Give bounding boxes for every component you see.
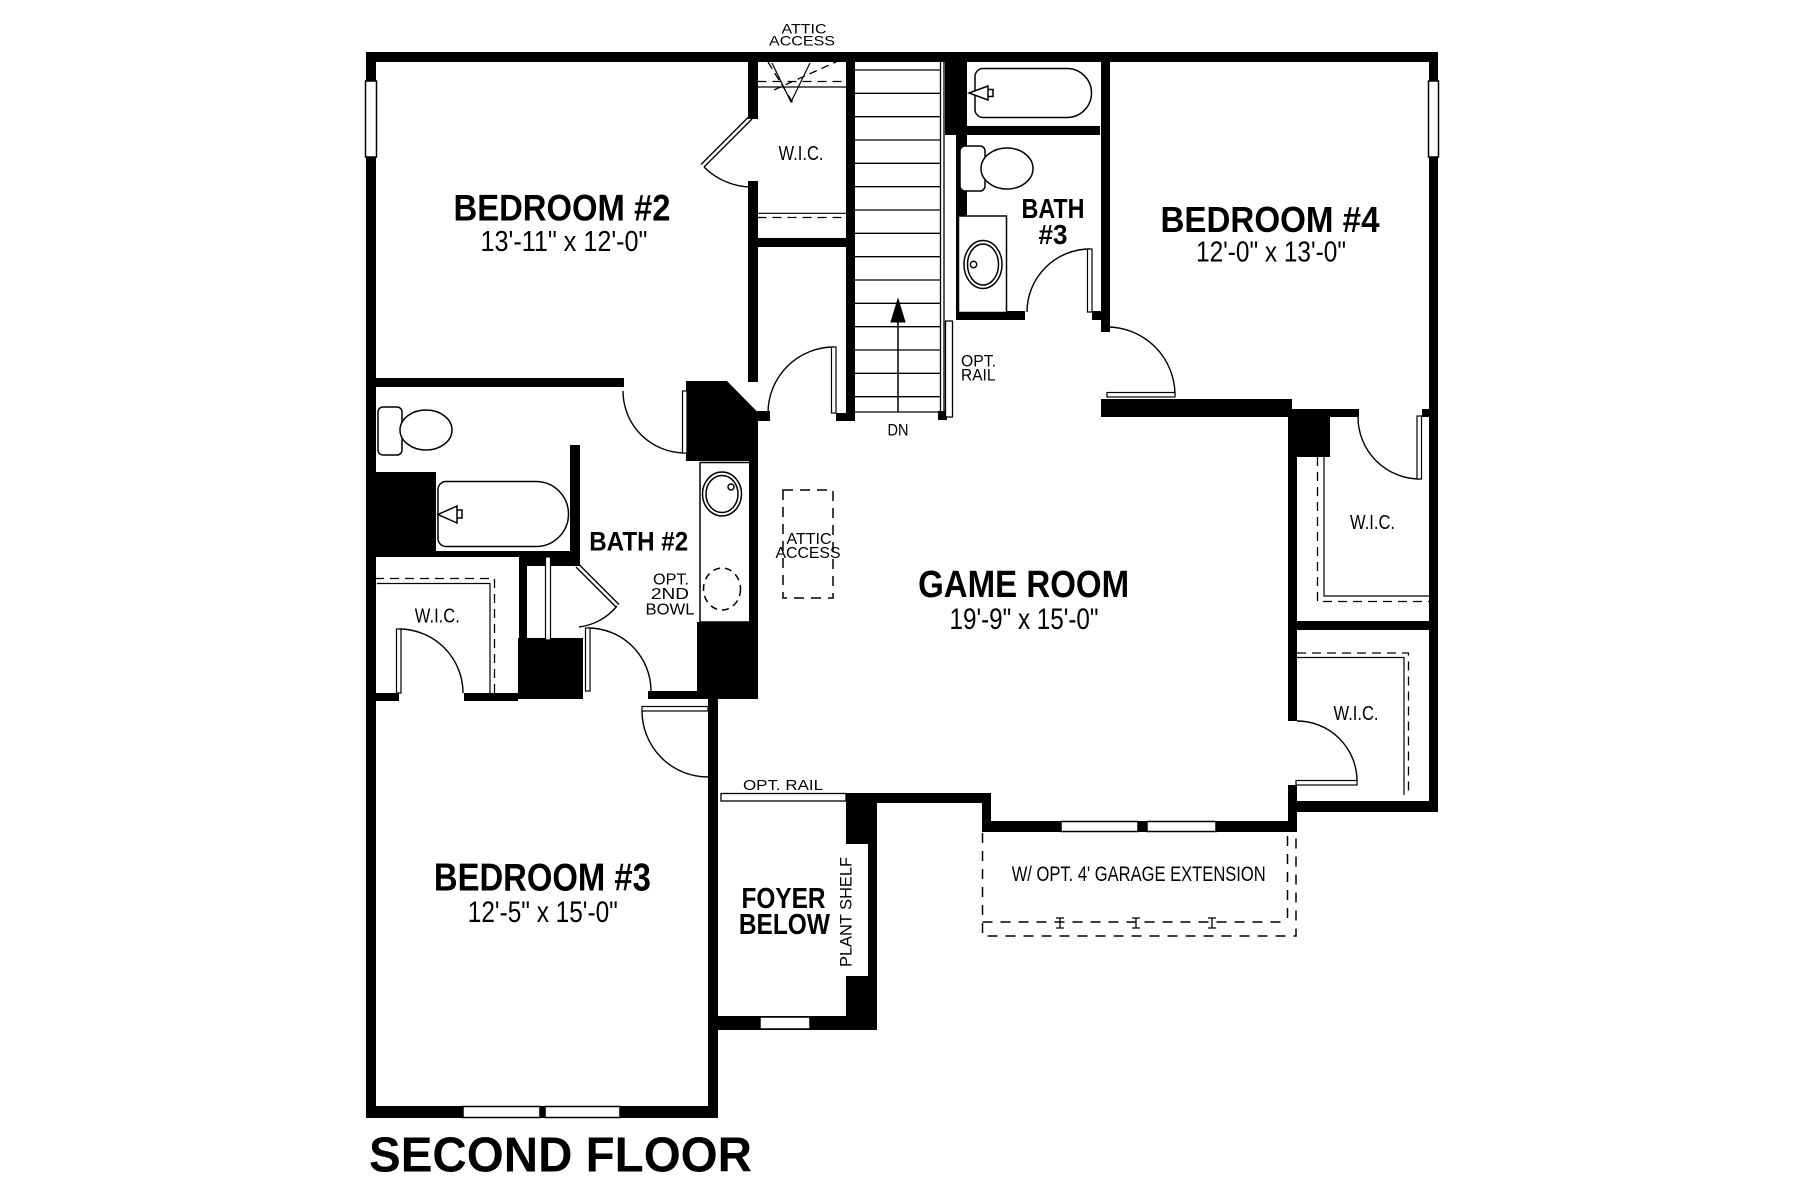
svg-text:W.I.C.: W.I.C. xyxy=(779,143,824,165)
svg-text:ACCESS: ACCESS xyxy=(769,33,835,49)
svg-text:GAME ROOM: GAME ROOM xyxy=(918,564,1129,606)
svg-text:W.I.C.: W.I.C. xyxy=(1334,703,1379,725)
svg-text:BEDROOM #4: BEDROOM #4 xyxy=(1161,199,1380,240)
svg-text:ACCESS: ACCESS xyxy=(776,545,841,562)
svg-text:W/ OPT. 4' GARAGE EXTENSION: W/ OPT. 4' GARAGE EXTENSION xyxy=(1012,863,1266,886)
svg-text:RAIL: RAIL xyxy=(961,365,996,384)
svg-text:BEDROOM #2: BEDROOM #2 xyxy=(454,188,671,229)
svg-text:DN: DN xyxy=(888,421,909,440)
svg-text:OPT. RAIL: OPT. RAIL xyxy=(743,777,823,794)
svg-text:BELOW: BELOW xyxy=(739,908,830,940)
svg-text:W.I.C.: W.I.C. xyxy=(1350,512,1395,534)
svg-text:SECOND FLOOR: SECOND FLOOR xyxy=(369,1129,752,1183)
svg-text:12'-5" x 15'-0": 12'-5" x 15'-0" xyxy=(468,896,618,929)
svg-text:#3: #3 xyxy=(1039,219,1068,250)
svg-text:BEDROOM #3: BEDROOM #3 xyxy=(434,856,651,899)
svg-text:BOWL: BOWL xyxy=(646,601,695,618)
svg-text:13'-11" x 12'-0": 13'-11" x 12'-0" xyxy=(481,226,648,258)
svg-text:BATH #2: BATH #2 xyxy=(589,527,688,557)
svg-text:W.I.C.: W.I.C. xyxy=(415,606,460,628)
svg-text:PLANT SHELF: PLANT SHELF xyxy=(837,857,856,967)
svg-text:12'-0" x 13'-0": 12'-0" x 13'-0" xyxy=(1196,237,1346,269)
svg-text:19'-9" x 15'-0": 19'-9" x 15'-0" xyxy=(950,603,1099,636)
